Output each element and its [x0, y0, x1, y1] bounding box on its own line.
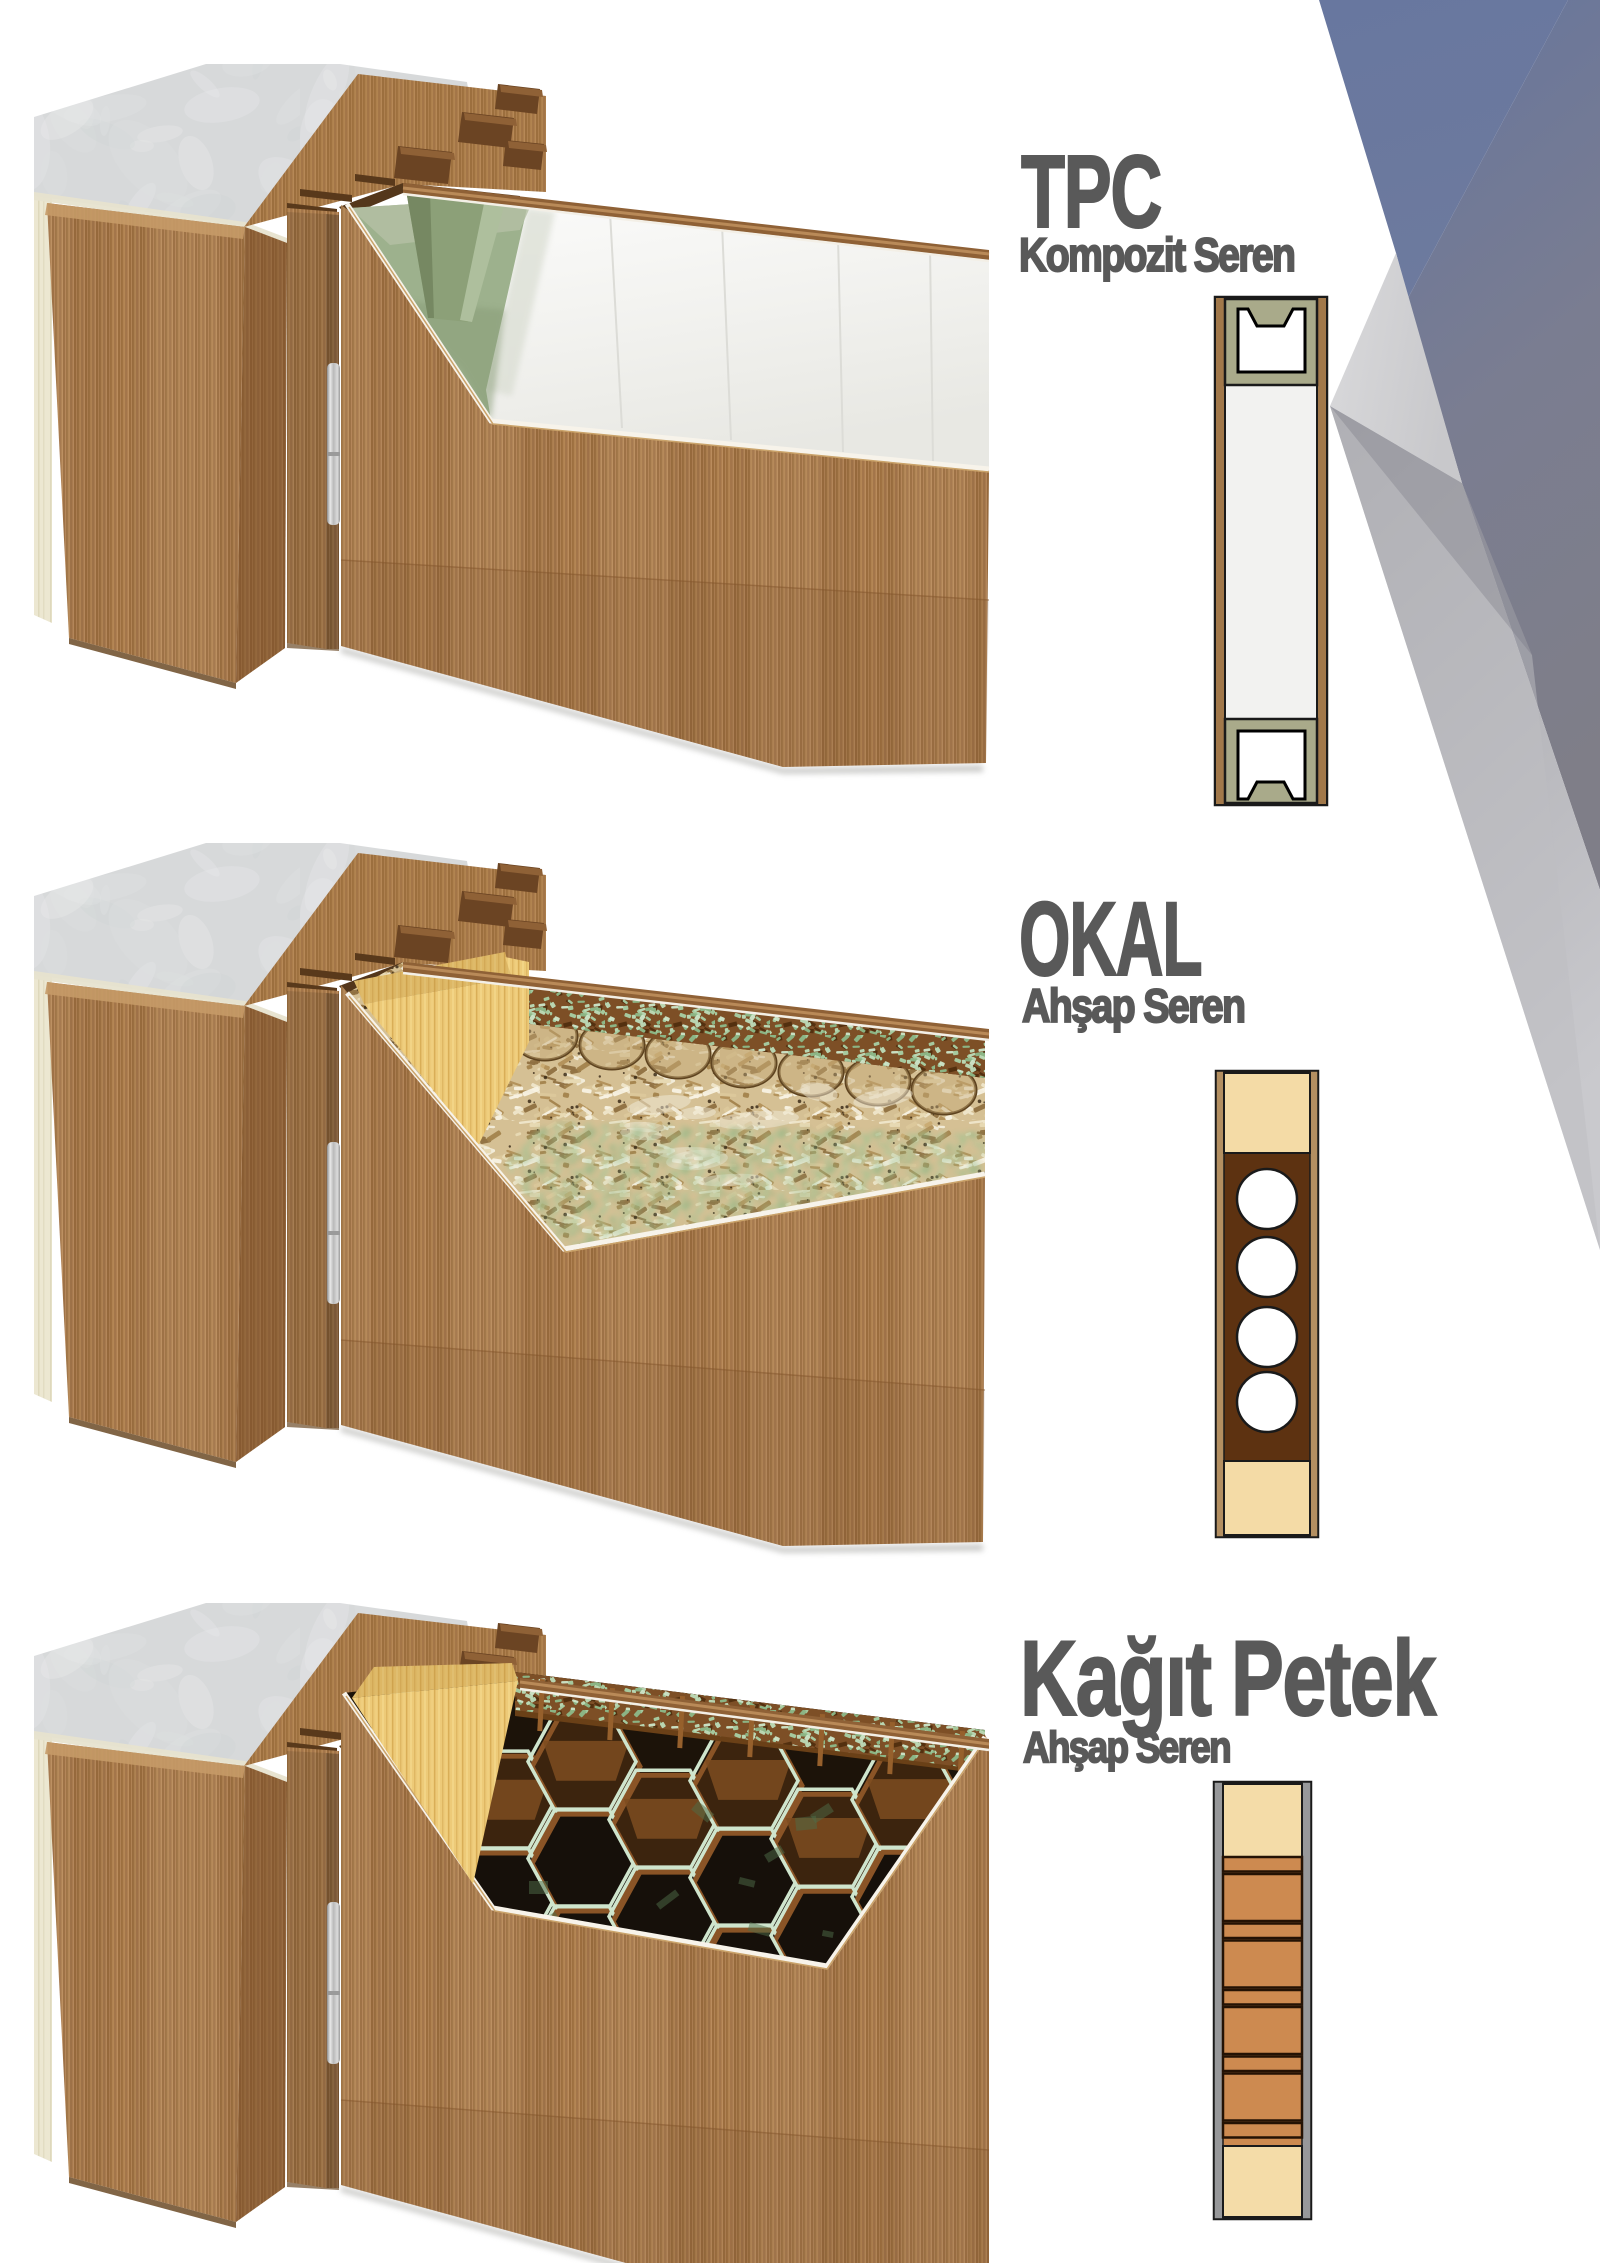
svg-text:Ahşap Seren: Ahşap Seren [1022, 981, 1244, 1033]
svg-text:Kağıt Petek: Kağıt Petek [1020, 1618, 1437, 1737]
svg-text:Kompozit Seren: Kompozit Seren [1019, 230, 1294, 282]
svg-text:Ahşap Seren: Ahşap Seren [1023, 1722, 1230, 1772]
